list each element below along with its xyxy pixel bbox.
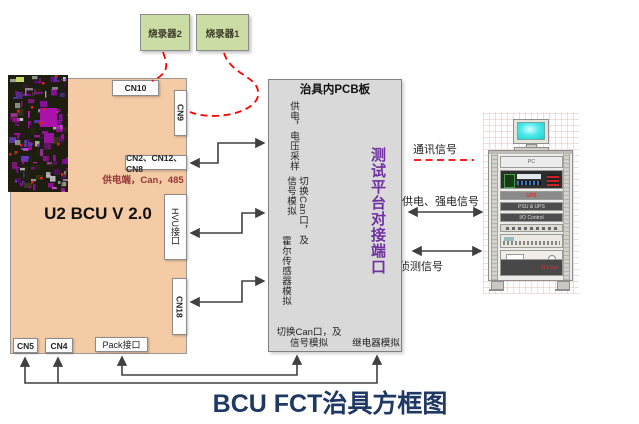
- rack-cabinet: PC UPS PSU & UPS I/O Control R Load: [488, 150, 573, 281]
- pcb-photo: [8, 75, 68, 192]
- rack-unit-instruments: [500, 170, 563, 189]
- can-switch-bottom-line1: 切换Can口，及: [276, 327, 342, 338]
- rack-unit-rload: R Load: [500, 259, 563, 276]
- rack-rail-right: [563, 151, 570, 280]
- cn18-label: CN18: [175, 296, 185, 318]
- rack-meter1-marks: [506, 227, 558, 230]
- diagram-title: BCU FCT治具方框图: [135, 384, 525, 420]
- hvu-label: HVU接口: [169, 208, 182, 245]
- power-note: 供电端，Can，485: [100, 172, 186, 186]
- fixture-power-sampling: 供电，电压采样: [287, 101, 299, 181]
- cn2-group-label: CN2、CN12、CN8: [126, 152, 186, 174]
- rack-instrument-display-green: [504, 174, 515, 188]
- rack-unit-meter1: [500, 224, 563, 232]
- rack-top-bar: [489, 151, 572, 154]
- rack-io-label: I/O Control: [519, 215, 543, 221]
- rack-foot-right: [555, 289, 570, 291]
- rack-unit-ups: UPS: [500, 191, 563, 200]
- connector-cn5: CN5: [13, 338, 38, 353]
- programmer2-label: 烧录器2: [148, 26, 182, 40]
- rack-unit-pc: PC: [500, 156, 563, 168]
- programmer2-box: 烧录器2: [140, 14, 190, 51]
- cn5-label: CN5: [17, 341, 34, 351]
- cn9-label: CN9: [176, 104, 186, 121]
- monitor-screen: [517, 122, 545, 140]
- signal-detect-label: 侦测信号: [399, 258, 451, 274]
- fixture-can-switch-bottom: 切换Can口，及 信号模拟: [276, 327, 342, 349]
- cn10-label: CN10: [125, 83, 147, 93]
- connector-cn4: CN4: [45, 338, 73, 353]
- can-switch-bottom-line2: 信号模拟: [276, 338, 342, 349]
- pack-label: Pack接口: [102, 338, 140, 351]
- signal-comm-label: 通讯信号: [413, 141, 475, 157]
- bcu-name: U2 BCU V 2.0: [36, 204, 160, 224]
- programmer1-label: 烧录器1: [206, 26, 240, 40]
- rack-unit-psu: PSU & UPS: [500, 202, 563, 211]
- rack-instrument-leds-red: [547, 174, 559, 186]
- rack-unit-meter2: [500, 234, 563, 248]
- diagram-canvas: 烧录器2 烧录器1 CN10 CN9 CN2、CN12、CN8 供电端，Can，…: [0, 0, 639, 424]
- rack-psu-label: PSU & UPS: [518, 204, 545, 210]
- fixture-relay-sim: 继电器模拟: [348, 335, 404, 349]
- rack-rail-left: [491, 151, 498, 280]
- rack-instrument-buttons-blue: [517, 181, 541, 185]
- rack-foot-left: [489, 289, 504, 291]
- rack-rload-label: R Load: [542, 265, 558, 271]
- can-switch-line1: 切换Can口，及: [296, 176, 308, 250]
- rack-ups-label: UPS: [526, 193, 536, 199]
- cn4-label: CN4: [50, 341, 67, 351]
- connector-cn10: CN10: [112, 80, 159, 96]
- connector-cn18: CN18: [172, 278, 187, 335]
- rack-instrument-display-white: [517, 174, 541, 179]
- connector-pack: Pack接口: [95, 337, 148, 352]
- connector-hvu: HVU接口: [164, 194, 187, 260]
- rack-meter2-keys: [503, 241, 560, 245]
- fixture-title: 治具内PCB板: [268, 81, 402, 97]
- rack-monitor: [513, 119, 549, 144]
- connector-cn9: CN9: [174, 90, 187, 136]
- rack-unit-io: I/O Control: [500, 213, 563, 222]
- programmer1-box: 烧录器1: [196, 14, 249, 51]
- connector-cn2-cn12-cn8: CN2、CN12、CN8: [125, 155, 187, 170]
- rack-pc-label: PC: [528, 159, 535, 165]
- signal-power-label: 供电、强电信号: [402, 193, 492, 209]
- fixture-hall-sim: 霍尔传感器模拟: [279, 236, 291, 320]
- fixture-port-label: 测试平台对接端口: [367, 147, 388, 279]
